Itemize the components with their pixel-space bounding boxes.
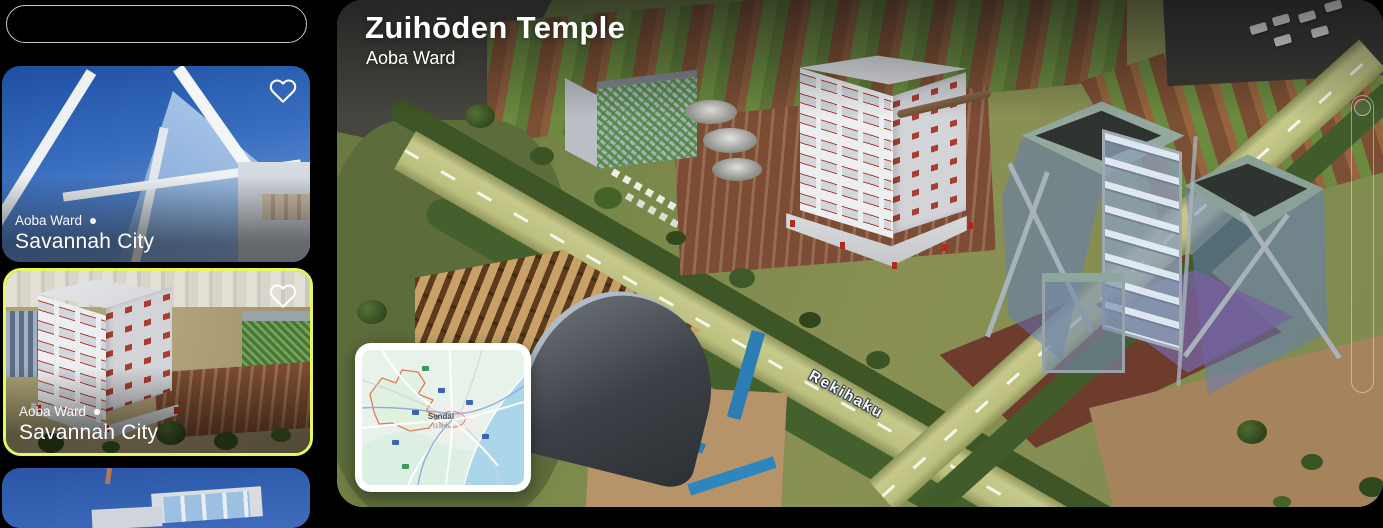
map-title: Zuihōden Temple [365, 10, 625, 46]
favorite-heart-icon[interactable] [269, 282, 297, 310]
minimap-city-label-jp: 仙台市 [433, 422, 450, 430]
slider-knob[interactable] [1354, 99, 1371, 116]
location-dot [94, 409, 100, 415]
location-dot [90, 218, 96, 224]
card-3-image [2, 468, 310, 528]
crane-detail [105, 468, 112, 484]
trees-left [357, 300, 387, 324]
building-card-3[interactable] [2, 468, 310, 528]
parasol-disc [703, 128, 757, 153]
zoom-slider[interactable] [1351, 95, 1374, 393]
search-input[interactable] [6, 5, 307, 43]
minimap[interactable]: Sendai 仙台市 [355, 343, 531, 492]
main-map-panel[interactable]: Zuihōden Temple Aoba Ward Rekihaku [337, 0, 1383, 507]
minimap-city-label: Sendai [428, 412, 454, 421]
card-ward-label: Aoba Ward [15, 213, 82, 228]
sidebar: Aoba Ward Savannah City [0, 0, 337, 507]
favorite-heart-icon[interactable] [269, 77, 297, 105]
card-city-label: Savannah City [19, 421, 158, 445]
map-subtitle: Aoba Ward [366, 48, 455, 69]
shrubs [1237, 420, 1267, 444]
card-ward-label: Aoba Ward [19, 404, 86, 419]
building-card-1[interactable]: Aoba Ward Savannah City [2, 66, 310, 262]
card-city-label: Savannah City [15, 230, 154, 254]
glass-building-model [1002, 92, 1334, 404]
building-wing [92, 506, 163, 528]
map-3d-scene: Zuihōden Temple Aoba Ward Rekihaku [337, 0, 1383, 507]
annex [1042, 273, 1125, 373]
building-card-2-selected[interactable]: Aoba Ward Savannah City [3, 268, 313, 456]
parasol-disc [712, 158, 762, 181]
